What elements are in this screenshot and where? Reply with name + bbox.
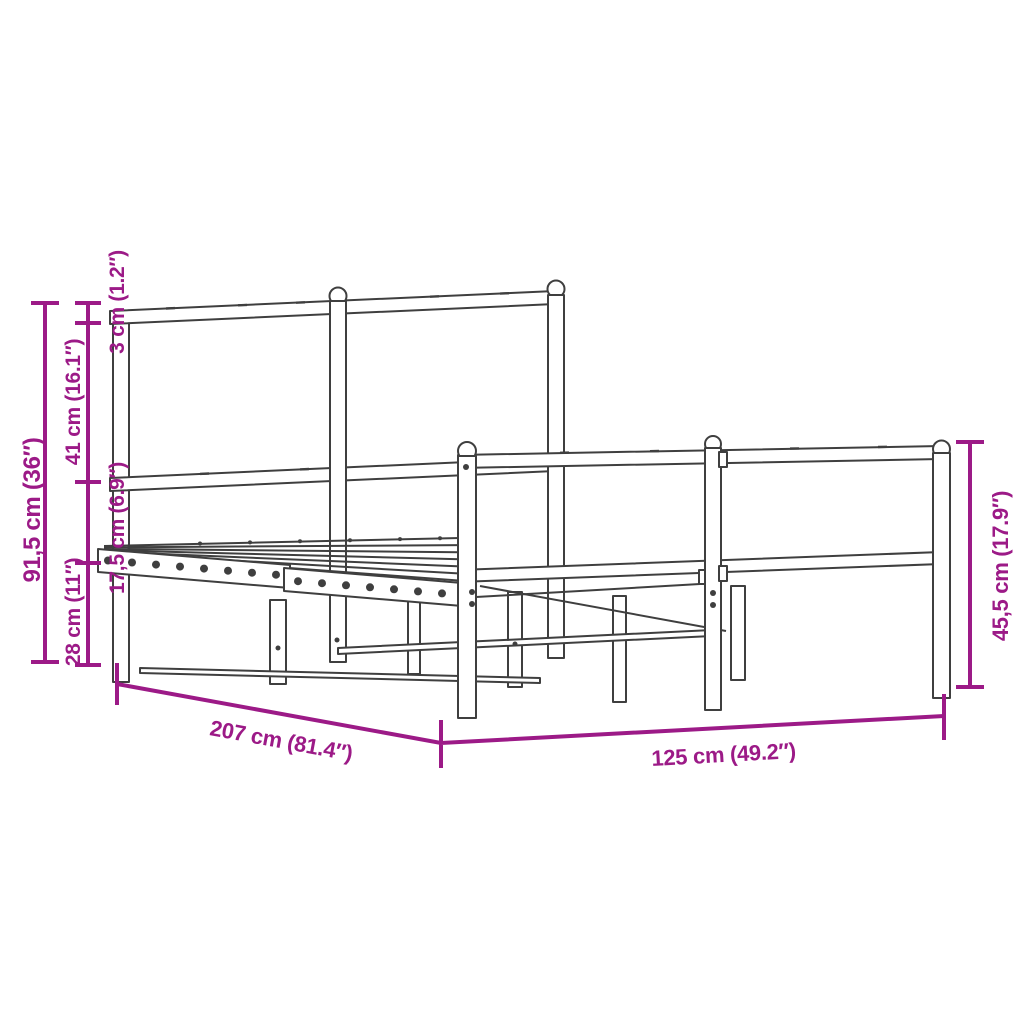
- footboard-near-post: [458, 456, 476, 718]
- dim-label-upper-section: 41 cm (16.1″): [62, 339, 85, 465]
- cross-brace-foot: [338, 630, 712, 654]
- cross-brace-head: [140, 668, 540, 683]
- dim-label-lower-section: 28 cm (11″): [62, 558, 85, 666]
- slat-base: [98, 536, 745, 702]
- dimension-lines: [31, 303, 984, 768]
- dim-label-tube-thickness: 3 cm (1.2″): [106, 250, 129, 354]
- hinge-connector: [719, 452, 727, 467]
- leg: [408, 596, 420, 674]
- footboard: [458, 436, 950, 718]
- dim-line-footboard-height: [956, 442, 984, 687]
- headboard: [110, 281, 565, 683]
- footboard-top-rail: [458, 446, 941, 468]
- leg: [731, 586, 745, 680]
- footboard-far-post: [933, 453, 950, 698]
- headboard-far-post: [548, 295, 564, 658]
- hinge-connector: [699, 570, 705, 584]
- hinge-connector: [719, 566, 727, 581]
- diagram-svg: 91,5 cm (36″) 41 cm (16.1″) 28 cm (11″) …: [0, 0, 1024, 1024]
- dim-label-total-height: 91,5 cm (36″): [19, 437, 46, 582]
- dim-label-mid-section: 17,5 cm (6.9″): [106, 462, 129, 594]
- dim-label-footboard-height: 45,5 cm (17.9″): [988, 491, 1013, 641]
- bed-frame: [98, 281, 950, 719]
- bed-frame-dimension-diagram: 91,5 cm (36″) 41 cm (16.1″) 28 cm (11″) …: [0, 0, 1024, 1024]
- headboard-center-post: [330, 301, 346, 662]
- dim-label-width: 125 cm (49.2″): [651, 738, 797, 771]
